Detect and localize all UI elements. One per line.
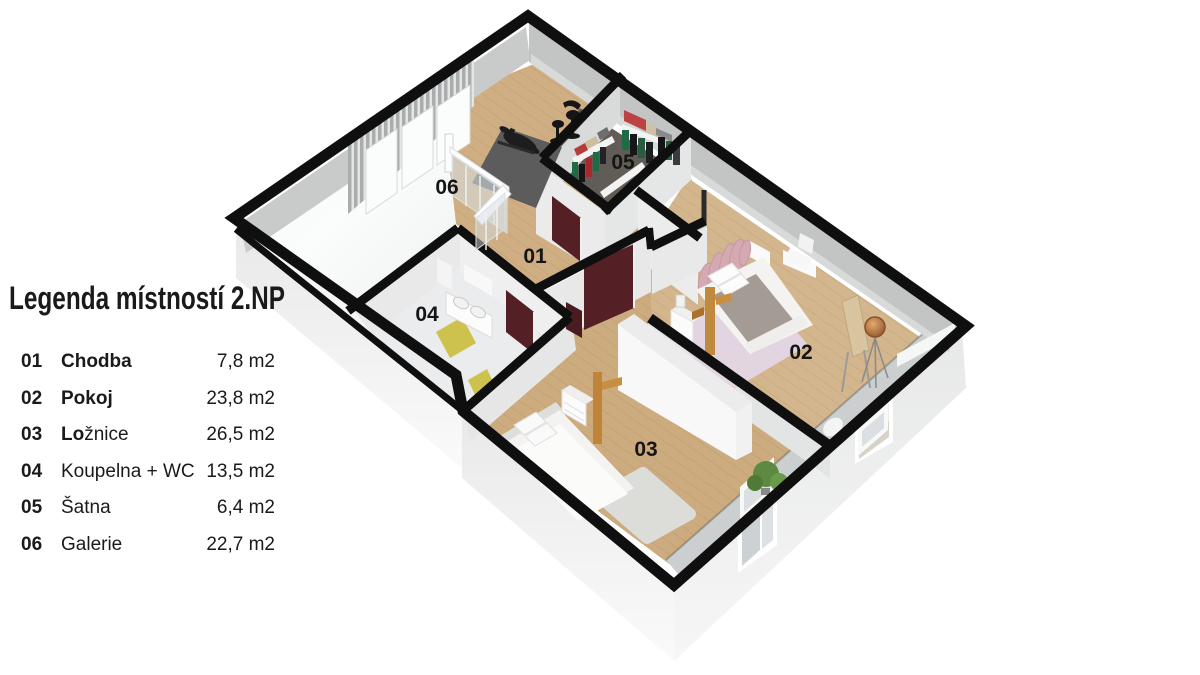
svg-text:Chodba: Chodba bbox=[61, 351, 132, 372]
svg-text:03: 03 bbox=[21, 424, 42, 445]
svg-text:04: 04 bbox=[415, 303, 439, 326]
svg-text:Galerie: Galerie bbox=[61, 534, 122, 555]
svg-text:04: 04 bbox=[21, 461, 43, 482]
svg-text:06: 06 bbox=[435, 176, 458, 199]
svg-text:Šatna: Šatna bbox=[61, 496, 111, 518]
svg-text:26,5 m2: 26,5 m2 bbox=[206, 424, 275, 445]
svg-text:Ložnice: Ložnice bbox=[61, 424, 129, 445]
svg-text:01: 01 bbox=[21, 351, 43, 372]
svg-text:06: 06 bbox=[21, 534, 42, 555]
svg-text:23,8 m2: 23,8 m2 bbox=[206, 388, 275, 409]
svg-text:13,5 m2: 13,5 m2 bbox=[206, 461, 275, 482]
svg-text:Pokoj: Pokoj bbox=[61, 388, 113, 409]
svg-text:01: 01 bbox=[523, 245, 547, 268]
svg-text:22,7 m2: 22,7 m2 bbox=[206, 534, 275, 555]
svg-text:02: 02 bbox=[21, 388, 42, 409]
svg-text:Legenda místností 2.NP: Legenda místností 2.NP bbox=[9, 280, 285, 316]
svg-text:6,4 m2: 6,4 m2 bbox=[217, 497, 275, 518]
svg-text:Koupelna + WC: Koupelna + WC bbox=[61, 461, 195, 482]
svg-text:05: 05 bbox=[21, 497, 43, 518]
svg-text:7,8 m2: 7,8 m2 bbox=[217, 351, 275, 372]
svg-text:02: 02 bbox=[789, 341, 812, 364]
svg-text:03: 03 bbox=[634, 438, 657, 461]
svg-text:05: 05 bbox=[611, 151, 635, 174]
